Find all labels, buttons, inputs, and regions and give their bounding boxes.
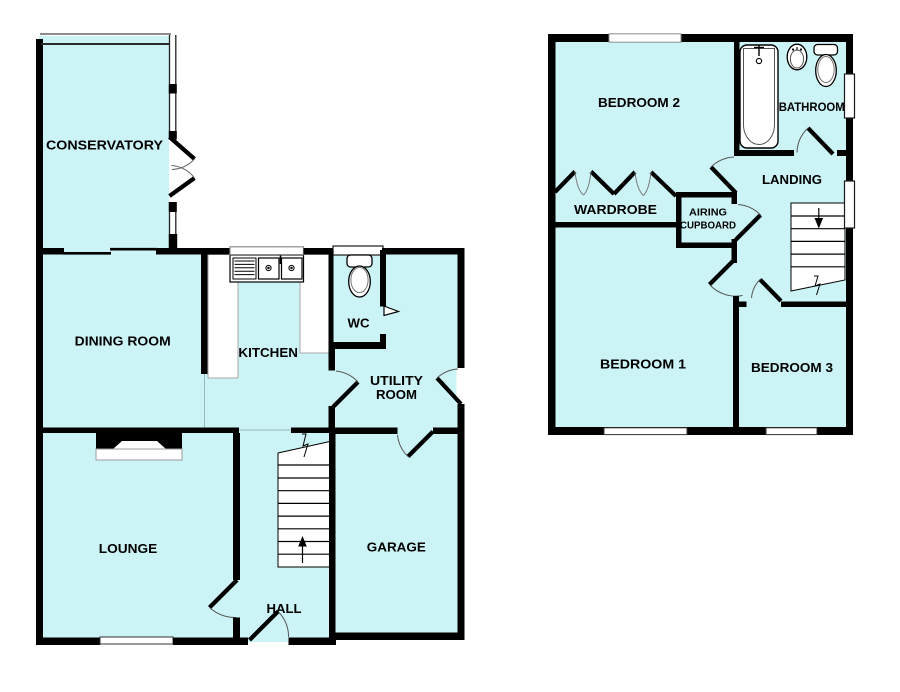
svg-text:CUPBOARD: CUPBOARD (680, 221, 736, 232)
svg-text:ROOM: ROOM (376, 387, 417, 402)
svg-text:AIRING: AIRING (689, 208, 727, 219)
svg-text:WARDROBE: WARDROBE (574, 202, 657, 217)
svg-text:WC: WC (348, 316, 371, 331)
svg-text:LOUNGE: LOUNGE (99, 541, 158, 556)
svg-text:CONSERVATORY: CONSERVATORY (46, 138, 163, 153)
svg-text:DINING ROOM: DINING ROOM (75, 334, 171, 349)
svg-text:KITCHEN: KITCHEN (238, 345, 298, 360)
svg-text:BATHROOM: BATHROOM (779, 100, 845, 114)
svg-text:BEDROOM 3: BEDROOM 3 (751, 360, 833, 375)
svg-text:HALL: HALL (267, 601, 302, 616)
svg-text:BEDROOM 1: BEDROOM 1 (600, 357, 686, 372)
svg-text:UTILITY: UTILITY (370, 373, 423, 388)
svg-text:GARAGE: GARAGE (367, 540, 426, 555)
svg-text:BEDROOM 2: BEDROOM 2 (598, 95, 680, 110)
svg-text:LANDING: LANDING (762, 172, 822, 187)
